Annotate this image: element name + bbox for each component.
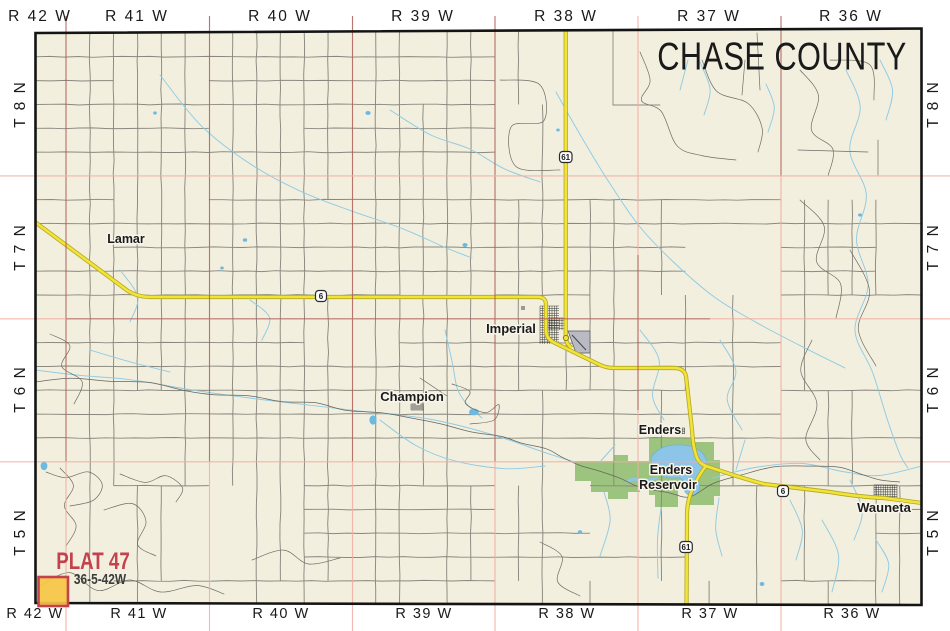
svg-text:61: 61 bbox=[561, 153, 570, 162]
svg-text:R 38 W: R 38 W bbox=[538, 606, 595, 622]
svg-text:R 37 W: R 37 W bbox=[677, 8, 741, 25]
svg-text:R 38 W: R 38 W bbox=[534, 8, 598, 25]
svg-text:T 7 N: T 7 N bbox=[12, 223, 29, 271]
svg-text:Champion: Champion bbox=[380, 389, 444, 404]
svg-text:T 7 N: T 7 N bbox=[925, 223, 942, 271]
svg-text:R 41 W: R 41 W bbox=[110, 606, 167, 622]
svg-text:61: 61 bbox=[682, 543, 691, 552]
svg-text:Reservoir: Reservoir bbox=[639, 478, 697, 492]
svg-text:R 41 W: R 41 W bbox=[105, 8, 169, 25]
svg-text:CHASE COUNTY: CHASE COUNTY bbox=[657, 35, 906, 78]
svg-text:R 39 W: R 39 W bbox=[395, 606, 452, 622]
svg-text:Enders: Enders bbox=[639, 423, 681, 437]
svg-text:R 40 W: R 40 W bbox=[252, 606, 309, 622]
svg-text:T 6 N: T 6 N bbox=[12, 365, 29, 413]
svg-text:T 5 N: T 5 N bbox=[12, 508, 29, 556]
svg-text:R 36 W: R 36 W bbox=[823, 606, 880, 622]
svg-text:T 5 N: T 5 N bbox=[925, 508, 942, 556]
svg-text:Imperial: Imperial bbox=[486, 321, 536, 336]
svg-text:T 6 N: T 6 N bbox=[925, 365, 942, 413]
svg-text:T 8 N: T 8 N bbox=[12, 80, 29, 128]
svg-text:R 39 W: R 39 W bbox=[391, 8, 455, 25]
svg-text:6: 6 bbox=[781, 487, 786, 496]
svg-text:R 42 W: R 42 W bbox=[6, 606, 63, 622]
svg-text:R 37 W: R 37 W bbox=[681, 606, 738, 622]
svg-text:Enders: Enders bbox=[650, 463, 692, 477]
svg-text:Wauneta: Wauneta bbox=[857, 500, 911, 515]
svg-text:R 42 W: R 42 W bbox=[8, 8, 72, 25]
svg-text:6: 6 bbox=[319, 292, 324, 301]
svg-text:R 40 W: R 40 W bbox=[248, 8, 312, 25]
svg-text:36-5-42W: 36-5-42W bbox=[74, 571, 127, 587]
svg-text:R 36 W: R 36 W bbox=[819, 8, 883, 25]
svg-text:T 8 N: T 8 N bbox=[925, 80, 942, 128]
svg-text:Lamar: Lamar bbox=[107, 232, 145, 246]
